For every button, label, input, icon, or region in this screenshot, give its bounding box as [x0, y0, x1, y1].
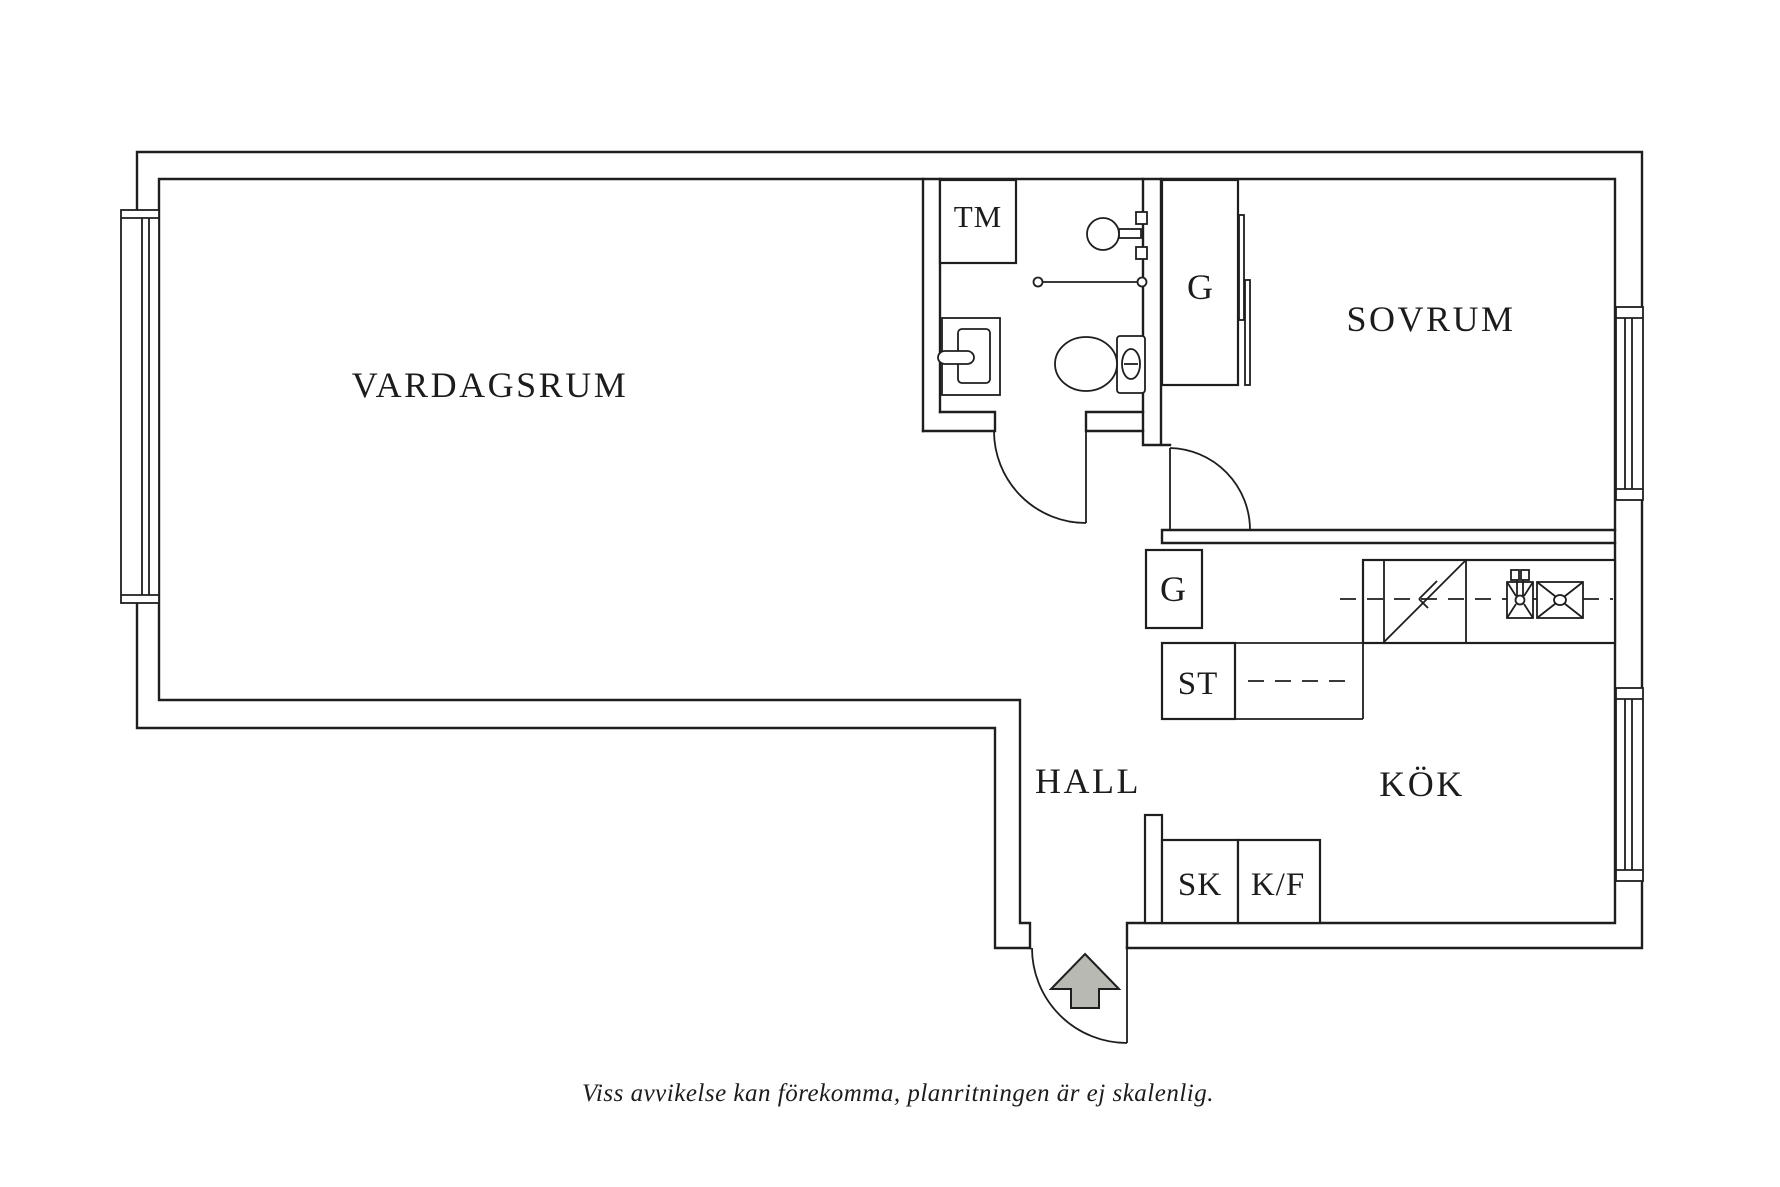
stove-icon [1537, 582, 1583, 618]
room-label-kok: KÖK [1379, 764, 1465, 804]
room-label-hall: HALL [1035, 761, 1141, 801]
shower-rail-icon [1034, 278, 1147, 287]
floorplan-drawing: VARDAGSRUM SOVRUM HALL KÖK TM G G ST SK … [0, 0, 1780, 1187]
bedroom-window [1616, 307, 1643, 500]
kitchen-counter [1340, 560, 1615, 643]
bathroom-left-wall [923, 179, 940, 431]
label-st: ST [1178, 666, 1219, 702]
washbasin-icon [938, 318, 1000, 395]
label-g-bedroom: G [1187, 267, 1213, 307]
plan-root: VARDAGSRUM SOVRUM HALL KÖK TM G G ST SK … [121, 152, 1643, 1107]
label-g-hall: G [1160, 569, 1186, 609]
shower-head-icon [1087, 212, 1147, 259]
doors [994, 431, 1250, 1043]
bathroom-bottom-wall-left [923, 412, 995, 431]
closets [1146, 180, 1363, 923]
bedroom-door [1170, 448, 1250, 530]
outer-wall [137, 152, 1642, 948]
labels: VARDAGSRUM SOVRUM HALL KÖK TM G G ST SK … [352, 199, 1516, 1107]
living-room-window [121, 210, 159, 603]
label-kf: K/F [1251, 867, 1305, 903]
label-tm: TM [954, 199, 1003, 234]
bathroom-bottom-wall-right [1086, 412, 1143, 431]
room-label-vardagsrum: VARDAGSRUM [352, 365, 628, 405]
floorplan-page: VARDAGSRUM SOVRUM HALL KÖK TM G G ST SK … [0, 0, 1780, 1187]
hall-stub-wall [1145, 815, 1162, 923]
kitchen-window [1616, 688, 1643, 881]
walls [137, 152, 1642, 948]
toilet-icon [1055, 336, 1145, 393]
kitchen-north-wall [1162, 530, 1615, 543]
entrance-arrow-icon [1051, 954, 1119, 1008]
bathroom-door [994, 431, 1086, 523]
room-label-sovrum: SOVRUM [1346, 299, 1515, 339]
disclaimer-caption: Viss avvikelse kan förekomma, planritnin… [582, 1080, 1214, 1107]
label-sk: SK [1178, 867, 1222, 903]
